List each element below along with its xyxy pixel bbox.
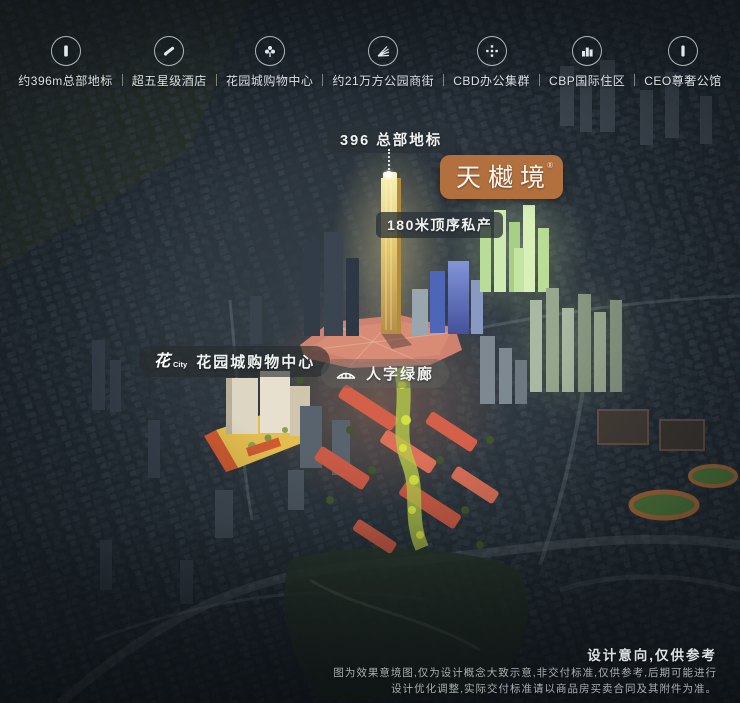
legend-label: CBP国际住区 bbox=[549, 72, 625, 89]
mall-label: 花园城购物中心 bbox=[196, 351, 315, 372]
legend-label: CEO尊奢公馆 bbox=[644, 72, 722, 89]
logo-cn: 花 bbox=[154, 354, 172, 370]
legend-item-cbd-office: CBD办公集群 bbox=[444, 36, 539, 89]
legend-item-residence: CBP国际住区 bbox=[540, 36, 634, 89]
legend-label: 花园城购物中心 bbox=[226, 72, 314, 89]
cbd-office-icon bbox=[477, 36, 507, 66]
legend-item-park-street: 约21万方公园商街 bbox=[323, 36, 443, 89]
marketing-render-page: 约396m总部地标 超五星级酒店 花园城购物中心 约21万方公园商街 bbox=[0, 0, 740, 703]
legend-item-hotel: 超五星级酒店 bbox=[123, 36, 216, 89]
disclaimer-line-2: 设计优化调整,实际交付标准请以商品房买卖合同及其附件为准。 bbox=[333, 684, 717, 696]
registered-mark: ® bbox=[547, 161, 553, 170]
logo-en: City bbox=[173, 361, 187, 369]
garden-city-logo: 花 City bbox=[154, 354, 187, 370]
aerial-city-render bbox=[0, 0, 740, 703]
legend-label: 约21万方公园商街 bbox=[332, 72, 434, 89]
callout-leader-dot bbox=[385, 171, 392, 178]
disclaimer-title: 设计意向,仅供参考 bbox=[333, 644, 717, 664]
callout-leader-line bbox=[388, 149, 390, 170]
legend-label: CBD办公集群 bbox=[453, 72, 530, 89]
greenway-label: 人字绿廊 bbox=[366, 363, 434, 384]
brand-name: 天樾境 bbox=[456, 165, 552, 192]
legend-bar: 约396m总部地标 超五星级酒店 花园城购物中心 约21万方公园商街 bbox=[0, 36, 740, 89]
callout-180m-private: 180米顶序私产 bbox=[376, 212, 503, 238]
callout-greenway: 人字绿廊 bbox=[321, 359, 449, 388]
callout-garden-city-mall: 花 City 花园城购物中心 bbox=[139, 346, 330, 377]
mansion-icon bbox=[668, 36, 698, 66]
legend-item-mall: 花园城购物中心 bbox=[217, 36, 323, 89]
callout-brand-tianyuejing: 天樾境® bbox=[440, 155, 563, 199]
park-street-icon bbox=[368, 36, 398, 66]
residence-icon bbox=[572, 36, 602, 66]
legend-item-headquarters: 约396m总部地标 bbox=[9, 36, 122, 89]
bridge-icon bbox=[336, 367, 356, 380]
tower-icon bbox=[51, 36, 81, 66]
legend-label: 超五星级酒店 bbox=[132, 72, 207, 89]
legend-item-mansion: CEO尊奢公馆 bbox=[635, 36, 731, 89]
callout-396-landmark: 396 总部地标 bbox=[327, 126, 455, 153]
disclaimer-line-1: 图为效果意境图,仅为设计概念大致示意,非交付标准,仅供参考,后期可能进行 bbox=[333, 668, 717, 680]
hotel-icon bbox=[154, 36, 184, 66]
legend-label: 约396m总部地标 bbox=[18, 72, 113, 89]
mall-flower-icon bbox=[255, 36, 285, 66]
disclaimer: 设计意向,仅供参考 图为效果意境图,仅为设计概念大致示意,非交付标准,仅供参考,… bbox=[333, 644, 717, 695]
